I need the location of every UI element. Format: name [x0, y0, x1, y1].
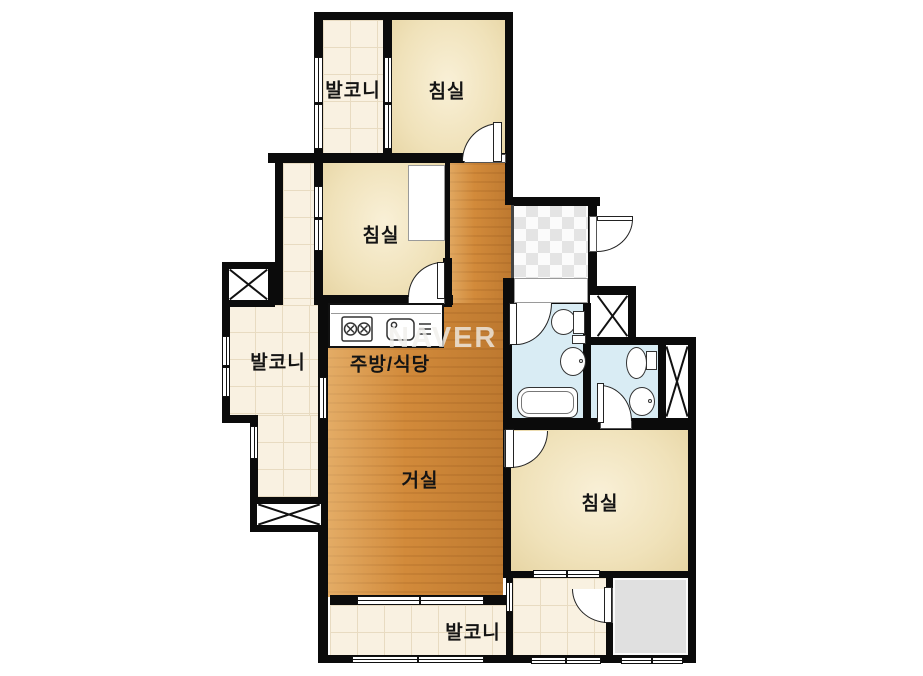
toilet-icon: [626, 347, 647, 379]
window: [314, 57, 323, 103]
window: [250, 426, 258, 459]
window: [652, 657, 683, 664]
window: [384, 57, 392, 103]
wall: [688, 337, 696, 578]
toilet-tank: [646, 351, 657, 370]
window: [418, 656, 484, 663]
bathtub-inner: [521, 391, 574, 414]
balcony-left-lower-floor: [256, 415, 320, 498]
wall: [275, 153, 283, 305]
window: [506, 582, 513, 612]
kitchen-counter-line: [331, 313, 441, 314]
shaft-x-icon: [597, 295, 628, 337]
entry-step-line: [511, 205, 514, 278]
balcony-left-strip-floor: [283, 163, 314, 305]
naver-watermark: NAVER: [388, 322, 497, 355]
wall: [314, 12, 513, 20]
faucet-dot: [579, 359, 583, 363]
door-leaf: [437, 262, 445, 299]
shaft-x-icon: [257, 504, 321, 525]
stove-icon: [341, 316, 373, 342]
bathtub-icon: [517, 387, 578, 418]
room-label-bedroom-right: 침실: [582, 489, 619, 516]
window: [222, 336, 230, 366]
window: [352, 656, 418, 663]
window: [531, 657, 566, 664]
room-label-bedroom-top: 침실: [429, 77, 466, 104]
wall: [503, 418, 598, 430]
window: [222, 367, 230, 397]
window: [384, 104, 392, 149]
toilet-shelf: [572, 335, 586, 344]
window: [314, 104, 323, 149]
door-leaf: [597, 383, 604, 423]
door-leaf: [509, 303, 517, 345]
wall: [688, 578, 696, 663]
room-label-living: 거실: [402, 466, 439, 493]
closet: [408, 165, 445, 241]
utility-room-floor: [613, 578, 688, 655]
room-label-balcony-top: 발코니: [325, 76, 380, 103]
window: [319, 377, 327, 419]
room-label-balcony-left: 발코니: [250, 348, 305, 375]
hall-corridor-floor: [445, 163, 511, 305]
window: [314, 219, 323, 251]
window: [567, 570, 600, 578]
shaft-x-icon: [666, 345, 688, 418]
front-door-threshold: [589, 216, 597, 252]
room-label-balcony-bottom: 발코니: [445, 618, 500, 645]
window: [621, 657, 652, 664]
entrance-floor: [514, 205, 588, 278]
window: [566, 657, 601, 664]
wall: [445, 160, 450, 265]
door-threshold: [600, 420, 632, 429]
toilet-tank: [573, 311, 585, 334]
floor-plan: 발코니 침실 침실 발코니 주방/식당 거실 침실 발코니 NAVER: [0, 0, 923, 676]
window: [314, 186, 323, 218]
room-label-bedroom-mid: 침실: [363, 221, 400, 248]
faucet-dot: [648, 399, 652, 403]
front-door-leaf: [597, 216, 633, 221]
door-leaf: [493, 122, 502, 162]
wall: [505, 12, 513, 167]
wall: [318, 297, 328, 663]
window: [420, 596, 484, 605]
door-leaf: [505, 429, 514, 468]
shoe-cabinet: [514, 278, 588, 303]
window: [357, 596, 420, 605]
window: [533, 570, 567, 578]
door-leaf: [604, 587, 612, 623]
shaft-x-icon: [229, 269, 268, 300]
wall: [511, 197, 600, 206]
front-door-arc: [597, 219, 633, 252]
